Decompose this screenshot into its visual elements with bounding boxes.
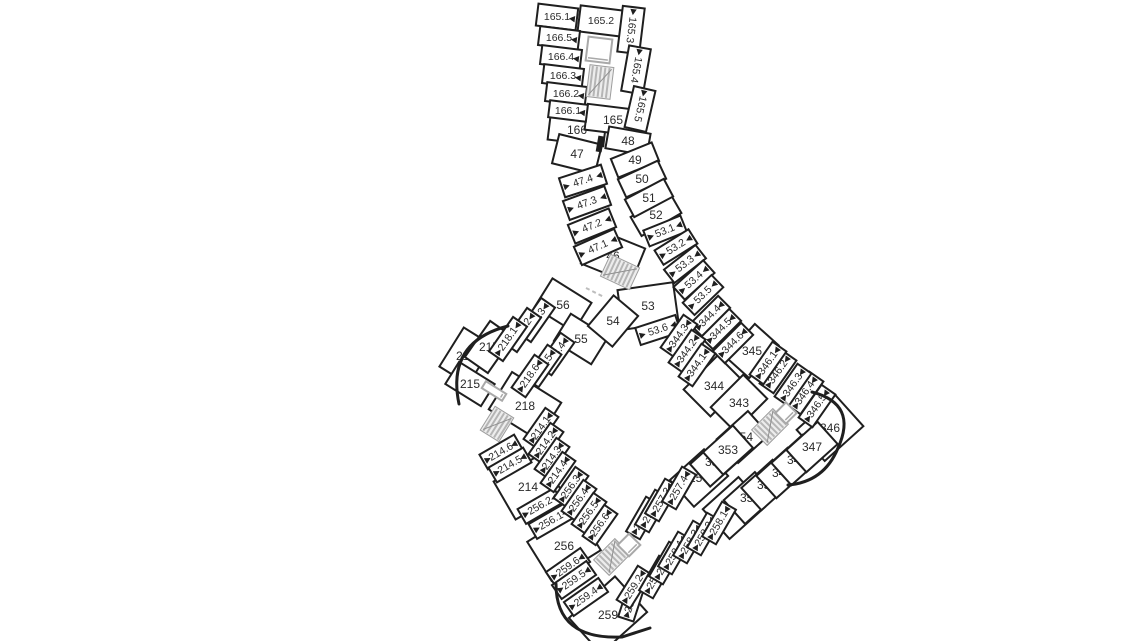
room-label: 49 xyxy=(628,153,642,167)
room-label: 218 xyxy=(515,399,535,413)
room-label: 214 xyxy=(518,480,538,494)
room-166.1[interactable]: 166.1 xyxy=(548,100,588,122)
room-label: 166.4 xyxy=(548,51,574,63)
room-label: 259 xyxy=(598,608,618,622)
room-label: 51 xyxy=(642,191,656,205)
room-label: 215 xyxy=(460,377,480,391)
room-label: 48 xyxy=(621,134,635,148)
room-label: 166.1 xyxy=(555,105,581,117)
room-label: 52 xyxy=(649,208,663,222)
room-label: 54 xyxy=(606,314,620,328)
room-label: 56 xyxy=(556,298,570,312)
room-label: 256 xyxy=(554,539,574,553)
room-label: 165.2 xyxy=(588,15,614,27)
room-label: 55 xyxy=(574,332,588,346)
room-label: 166.5 xyxy=(546,32,572,44)
staircase-icon xyxy=(586,65,614,100)
room-label: 50 xyxy=(635,172,649,186)
room-label: 165 xyxy=(603,113,623,127)
room-label: 166.2 xyxy=(553,88,579,100)
room-label: 165.1 xyxy=(544,11,570,23)
elevator-icon xyxy=(586,37,613,64)
room-label: 345 xyxy=(742,344,762,358)
room-label: 347 xyxy=(802,440,822,454)
room-label: 344 xyxy=(704,379,724,393)
floor-plan-svg: 2592562182145334646258344257562163431665… xyxy=(0,0,1140,641)
floor-plan-page: 2592562182145334646258344257562163431665… xyxy=(0,0,1140,641)
room-165.2[interactable]: 165.2 xyxy=(578,5,625,36)
room-label: 353 xyxy=(718,443,738,457)
room-label: 53 xyxy=(641,299,655,313)
room-label: 343 xyxy=(729,396,749,410)
room-label: 166.3 xyxy=(550,70,576,82)
corridor-dashed-line xyxy=(586,288,604,297)
room-label: 47 xyxy=(570,147,584,161)
